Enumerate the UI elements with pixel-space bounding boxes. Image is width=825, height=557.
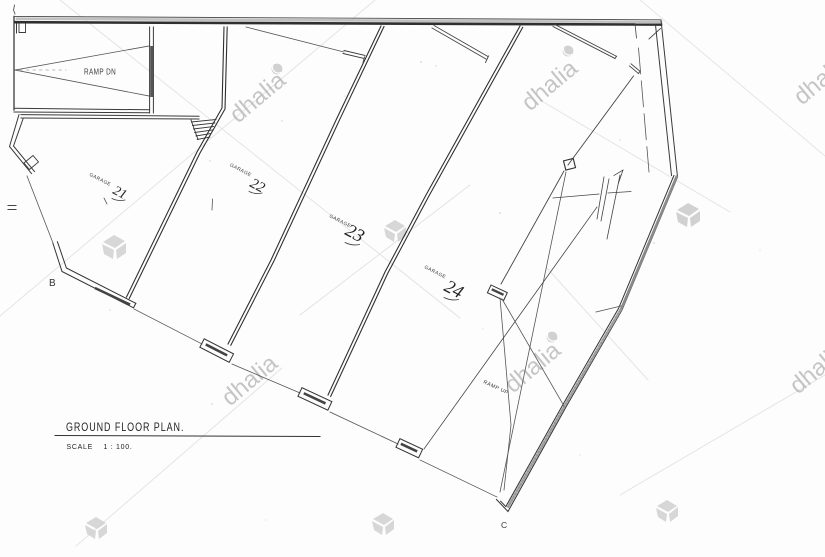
svg-text:dhalia: dhalia — [216, 349, 283, 411]
svg-text:24: 24 — [441, 277, 467, 303]
svg-text:dhalia: dhalia — [784, 337, 825, 399]
svg-text:GARAGE: GARAGE — [423, 264, 447, 280]
svg-text:dhalia: dhalia — [499, 336, 566, 398]
svg-text:B: B — [49, 278, 56, 289]
svg-text:C: C — [501, 520, 507, 530]
svg-text:dhalia: dhalia — [224, 66, 291, 128]
svg-text:GARAGE: GARAGE — [229, 162, 253, 178]
svg-text:dhalia: dhalia — [516, 54, 583, 116]
svg-text:RAMP DN: RAMP DN — [84, 67, 116, 77]
svg-text:SCALE 1 : 100.: SCALE 1 : 100. — [67, 444, 133, 451]
svg-text:22: 22 — [247, 175, 267, 196]
svg-text:dhalia: dhalia — [788, 48, 825, 110]
svg-text:GROUND FLOOR PLAN.: GROUND FLOOR PLAN. — [66, 422, 184, 434]
svg-text:GARAGE: GARAGE — [88, 172, 112, 188]
